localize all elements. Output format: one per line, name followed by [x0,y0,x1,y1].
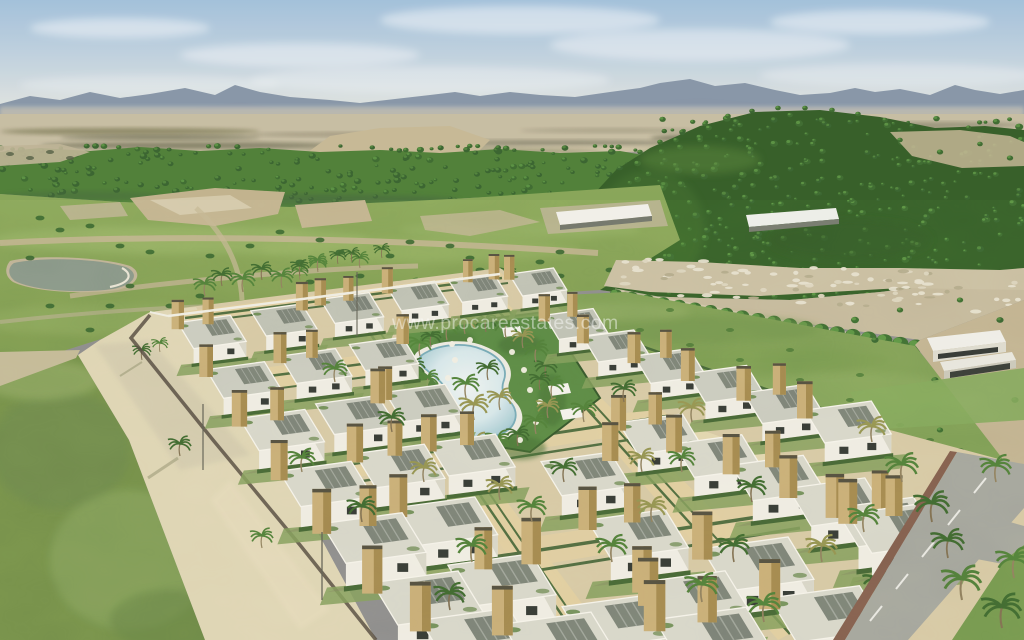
svg-text:www.procareestates.com: www.procareestates.com [391,312,619,334]
